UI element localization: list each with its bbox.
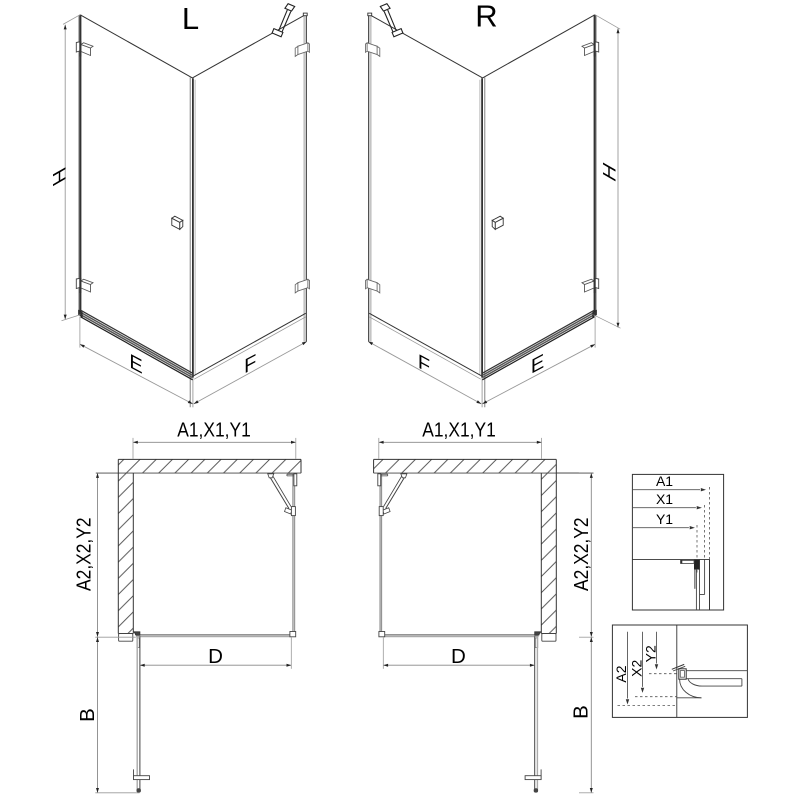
svg-text:A1: A1 — [656, 473, 673, 489]
svg-text:Y1: Y1 — [656, 511, 673, 527]
svg-text:R: R — [475, 0, 497, 34]
svg-text:B: B — [570, 705, 593, 719]
svg-text:A2: A2 — [613, 665, 629, 682]
svg-text:B: B — [76, 708, 99, 722]
svg-text:L: L — [182, 1, 199, 36]
svg-text:A1,X1,Y1: A1,X1,Y1 — [422, 419, 496, 442]
svg-text:D: D — [451, 645, 466, 668]
svg-text:A2,X2,Y2: A2,X2,Y2 — [570, 517, 593, 591]
svg-text:Y2: Y2 — [643, 645, 659, 662]
svg-text:A2,X2,Y2: A2,X2,Y2 — [73, 517, 96, 591]
svg-text:D: D — [208, 645, 223, 668]
svg-text:X1: X1 — [656, 491, 673, 507]
svg-text:A1,X1,Y1: A1,X1,Y1 — [177, 419, 251, 442]
